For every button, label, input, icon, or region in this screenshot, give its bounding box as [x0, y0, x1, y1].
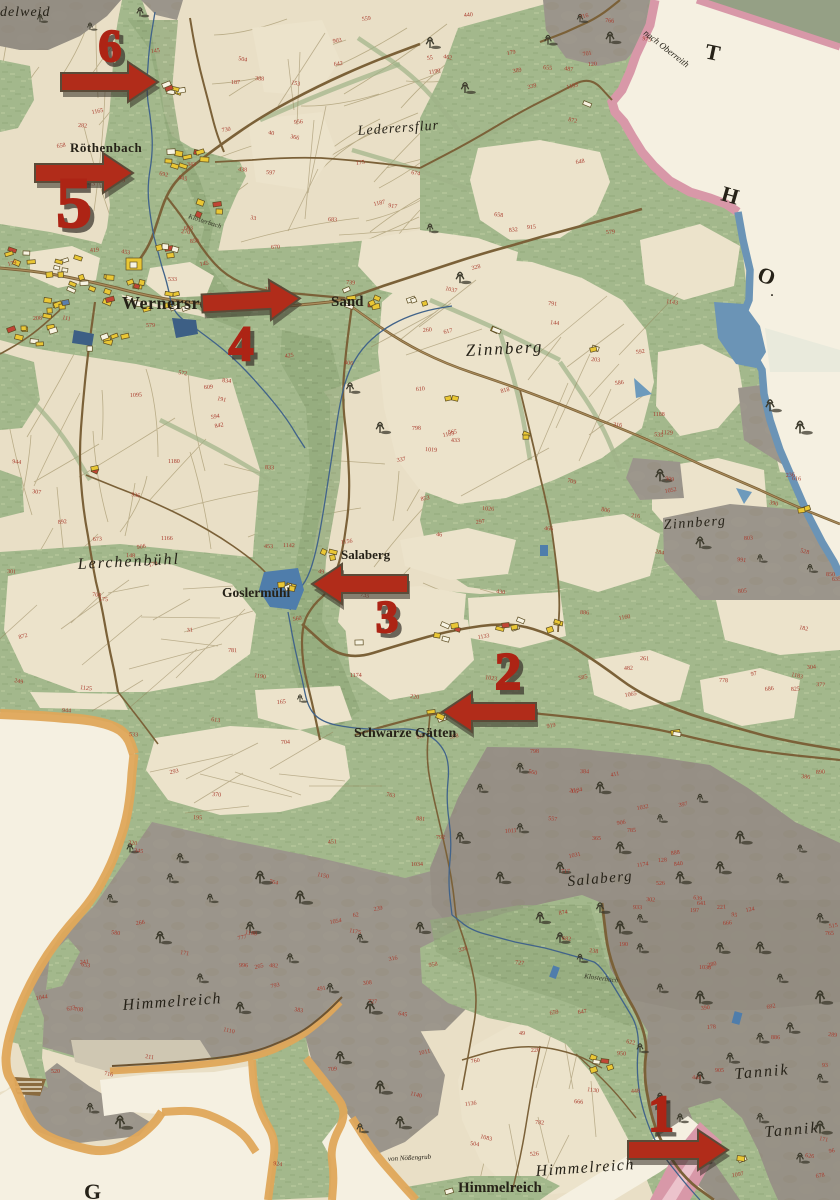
svg-text:304: 304: [807, 665, 816, 671]
svg-text:343: 343: [187, 162, 196, 168]
svg-text:950: 950: [617, 1051, 626, 1057]
svg-text:791: 791: [548, 301, 557, 308]
svg-text:792: 792: [436, 835, 445, 841]
svg-text:833: 833: [265, 465, 274, 471]
svg-text:175: 175: [355, 160, 365, 167]
svg-text:316: 316: [613, 422, 623, 429]
svg-text:991: 991: [737, 557, 747, 564]
svg-text:610: 610: [416, 386, 425, 393]
svg-text:365: 365: [592, 836, 601, 842]
svg-text:Sand: Sand: [331, 294, 364, 310]
svg-text:1: 1: [648, 1086, 674, 1143]
svg-text:266: 266: [135, 920, 145, 927]
svg-text:388: 388: [255, 76, 264, 83]
svg-text:727: 727: [515, 960, 525, 967]
svg-text:1095: 1095: [130, 393, 142, 399]
svg-text:62: 62: [353, 912, 360, 919]
svg-text:944: 944: [12, 459, 22, 466]
svg-text:924: 924: [273, 1161, 283, 1168]
svg-text:Goslermühl: Goslermühl: [222, 585, 291, 600]
svg-text:559: 559: [361, 16, 371, 23]
svg-text:6: 6: [99, 20, 122, 71]
svg-text:190: 190: [619, 942, 628, 948]
svg-text:658: 658: [494, 212, 504, 219]
svg-text:208: 208: [33, 316, 42, 322]
svg-text:1026: 1026: [482, 506, 494, 513]
svg-text:504: 504: [470, 1141, 480, 1148]
svg-text:881: 881: [416, 816, 426, 823]
svg-text:1174: 1174: [350, 673, 362, 679]
svg-text:778: 778: [719, 678, 728, 684]
svg-text:996: 996: [239, 963, 248, 969]
svg-text:197: 197: [690, 908, 699, 914]
svg-text:5: 5: [56, 163, 92, 243]
svg-text:526: 526: [530, 1151, 539, 1158]
svg-text:453: 453: [264, 544, 273, 550]
svg-text:40: 40: [268, 130, 275, 137]
svg-text:377: 377: [816, 682, 825, 689]
svg-text:3: 3: [376, 592, 399, 642]
svg-text:165: 165: [277, 699, 286, 706]
svg-text:586: 586: [615, 380, 625, 387]
svg-text:1034: 1034: [411, 862, 423, 868]
svg-text:803: 803: [744, 536, 753, 542]
svg-text:1142: 1142: [283, 543, 295, 549]
svg-text:580: 580: [111, 930, 121, 937]
svg-text:1180: 1180: [168, 459, 180, 465]
svg-text:46: 46: [436, 532, 443, 539]
svg-text:1166: 1166: [161, 536, 173, 542]
svg-text:289: 289: [828, 1032, 838, 1039]
svg-text:834: 834: [222, 378, 232, 385]
svg-text:Röthenbach: Röthenbach: [70, 140, 142, 155]
svg-text:440: 440: [464, 12, 474, 19]
svg-text:282: 282: [78, 123, 87, 129]
svg-text:888: 888: [670, 850, 680, 857]
svg-text:666: 666: [723, 920, 732, 927]
svg-text:915: 915: [527, 225, 536, 231]
svg-text:682: 682: [562, 936, 571, 943]
svg-text:1188: 1188: [653, 412, 665, 418]
svg-text:308: 308: [363, 980, 373, 987]
svg-text:579: 579: [146, 323, 155, 329]
svg-text:297: 297: [476, 519, 486, 526]
svg-text:482: 482: [624, 666, 633, 672]
svg-text:798: 798: [530, 749, 539, 755]
svg-text:144: 144: [550, 320, 560, 327]
svg-text:766: 766: [605, 18, 614, 25]
svg-text:G: G: [84, 1179, 101, 1200]
svg-text:345: 345: [134, 848, 144, 855]
svg-text:419: 419: [90, 248, 99, 254]
svg-text:261: 261: [640, 656, 649, 662]
svg-text:97: 97: [750, 671, 757, 678]
svg-text:886: 886: [771, 1035, 780, 1041]
svg-text:448: 448: [631, 1089, 640, 1095]
svg-text:451: 451: [328, 839, 338, 846]
svg-text:597: 597: [266, 170, 275, 177]
svg-text:55: 55: [427, 55, 434, 62]
svg-text:683: 683: [328, 217, 337, 223]
svg-text:438: 438: [238, 167, 247, 174]
svg-text:798: 798: [412, 426, 421, 432]
svg-text:216: 216: [631, 513, 641, 520]
svg-text:4: 4: [229, 315, 254, 371]
svg-text:727: 727: [368, 999, 377, 1005]
svg-text:526: 526: [656, 881, 665, 887]
svg-text:128: 128: [658, 858, 667, 864]
svg-text:760: 760: [470, 1058, 480, 1065]
svg-text:557: 557: [548, 816, 558, 823]
svg-text:466: 466: [544, 526, 553, 533]
svg-text:390: 390: [701, 1005, 711, 1012]
svg-text:666: 666: [574, 1099, 583, 1106]
svg-text:Himmelreich: Himmelreich: [458, 1180, 543, 1196]
svg-text:delweid: delweid: [0, 5, 51, 20]
svg-text:.: .: [770, 283, 774, 300]
svg-text:95: 95: [731, 912, 738, 919]
svg-text:220: 220: [410, 694, 420, 701]
svg-text:31: 31: [187, 627, 194, 634]
svg-text:1129: 1129: [661, 430, 673, 437]
svg-text:320: 320: [128, 840, 138, 847]
svg-text:592: 592: [635, 349, 645, 356]
svg-text:944: 944: [62, 708, 71, 714]
svg-text:406: 406: [344, 360, 354, 367]
svg-text:433: 433: [451, 438, 460, 444]
svg-text:785: 785: [627, 828, 636, 834]
svg-text:673: 673: [93, 537, 102, 543]
svg-text:178: 178: [707, 1024, 716, 1031]
svg-text:892: 892: [58, 519, 68, 526]
svg-text:626: 626: [805, 1153, 815, 1160]
svg-text:686: 686: [765, 686, 775, 693]
svg-text:905: 905: [715, 1068, 724, 1074]
svg-text:655: 655: [543, 65, 553, 72]
svg-text:203: 203: [591, 357, 600, 364]
svg-text:850: 850: [190, 238, 199, 245]
svg-text:832: 832: [509, 227, 519, 234]
svg-text:670: 670: [271, 245, 280, 251]
svg-text:187: 187: [231, 80, 240, 86]
svg-text:370: 370: [212, 792, 221, 799]
svg-text:96: 96: [828, 1148, 835, 1155]
svg-text:2: 2: [495, 643, 522, 701]
svg-text:515: 515: [828, 923, 838, 930]
svg-text:302: 302: [646, 897, 655, 904]
svg-text:709: 709: [328, 1067, 337, 1073]
svg-text:221: 221: [717, 905, 726, 911]
svg-text:739: 739: [346, 280, 355, 287]
svg-text:444: 444: [692, 1075, 701, 1081]
svg-text:805: 805: [738, 588, 747, 595]
svg-text:1038: 1038: [699, 965, 711, 971]
svg-text:533: 533: [168, 277, 177, 283]
svg-text:642: 642: [334, 61, 344, 68]
svg-text:886: 886: [580, 610, 589, 616]
svg-text:825: 825: [791, 686, 800, 693]
svg-text:220: 220: [531, 1048, 540, 1054]
svg-text:647: 647: [577, 1009, 587, 1016]
svg-text:613: 613: [211, 717, 221, 724]
svg-text:1011: 1011: [505, 828, 517, 835]
svg-text:708: 708: [92, 592, 102, 599]
svg-text:Schwarze Gätten: Schwarze Gätten: [354, 726, 456, 741]
svg-text:145: 145: [151, 48, 161, 55]
svg-text:609: 609: [204, 385, 213, 391]
svg-text:533: 533: [129, 732, 138, 739]
svg-text:906: 906: [136, 544, 146, 551]
svg-text:384: 384: [580, 769, 589, 775]
svg-text:781: 781: [228, 648, 237, 654]
svg-text:49: 49: [318, 569, 325, 576]
svg-text:49: 49: [519, 1031, 525, 1037]
svg-text:307: 307: [32, 489, 42, 496]
svg-text:236: 236: [786, 472, 795, 479]
svg-text:93: 93: [822, 1063, 828, 1069]
svg-text:782: 782: [535, 1120, 544, 1126]
svg-text:Salaberg: Salaberg: [341, 547, 391, 562]
svg-text:238: 238: [589, 948, 599, 955]
svg-text:579: 579: [606, 230, 615, 236]
svg-text:260: 260: [423, 327, 432, 334]
svg-text:195: 195: [193, 815, 202, 822]
svg-text:635: 635: [832, 577, 840, 583]
svg-text:120: 120: [588, 62, 597, 68]
svg-text:301: 301: [7, 569, 16, 575]
svg-text:933: 933: [633, 905, 642, 911]
svg-text:482: 482: [269, 963, 278, 970]
svg-text:386: 386: [801, 774, 811, 781]
svg-text:430: 430: [496, 589, 506, 596]
svg-text:520: 520: [51, 1069, 60, 1075]
svg-text:603: 603: [184, 226, 193, 232]
svg-text:1019: 1019: [425, 447, 437, 454]
svg-text:765: 765: [825, 931, 834, 937]
svg-text:956: 956: [294, 119, 303, 126]
svg-text:840: 840: [674, 861, 684, 868]
svg-text:890: 890: [816, 769, 825, 776]
svg-text:205: 205: [569, 788, 579, 795]
svg-text:Zinnberg: Zinnberg: [465, 337, 544, 360]
svg-text:565: 565: [448, 429, 457, 436]
svg-text:704: 704: [281, 740, 290, 746]
